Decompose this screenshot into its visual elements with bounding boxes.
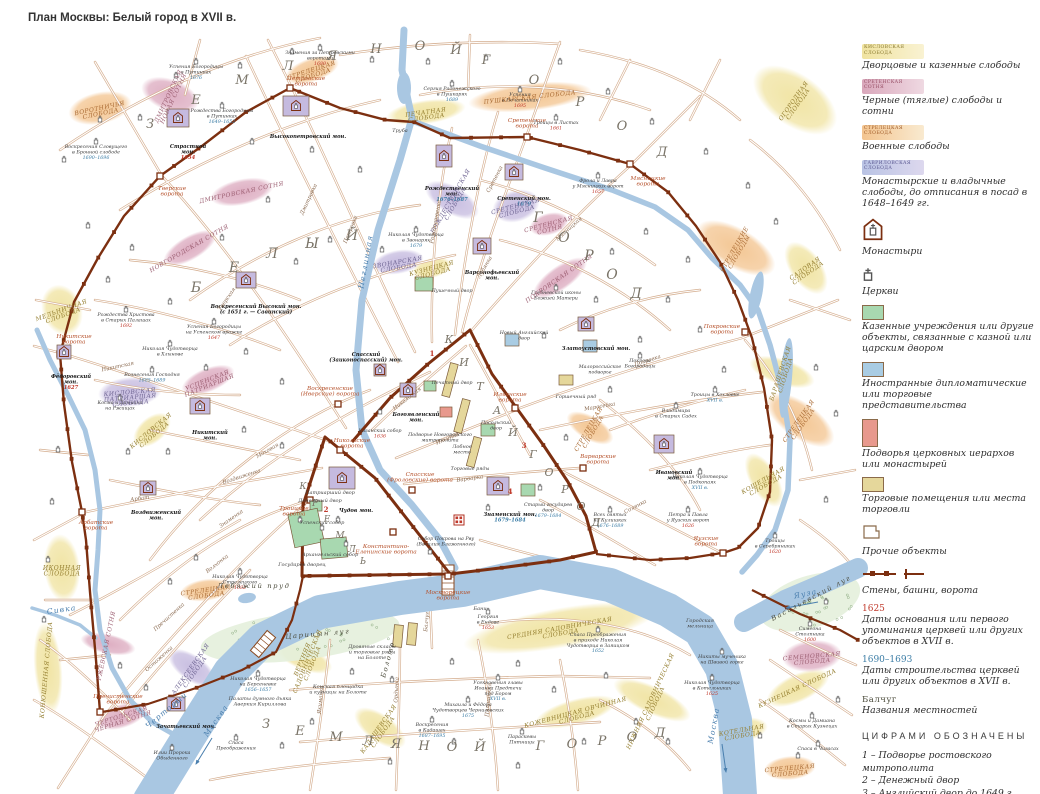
church-icon — [862, 265, 1034, 285]
legend-item: БалчугНазвания местностей — [862, 695, 1034, 717]
district-letter: Й — [449, 40, 462, 58]
church-body — [168, 342, 172, 346]
church-icon — [168, 340, 172, 346]
church-icon — [428, 548, 432, 554]
church-icon — [814, 364, 818, 370]
church-icon-svg — [862, 265, 874, 281]
wall-tower — [359, 465, 363, 469]
church-body — [234, 736, 238, 740]
church-body — [698, 470, 702, 474]
building-trade — [559, 375, 573, 385]
legend-color-rect — [862, 305, 884, 320]
church-icon — [638, 336, 642, 342]
church-body — [686, 258, 690, 262]
church-icon — [280, 442, 284, 448]
church-icon — [380, 246, 384, 252]
church-body — [582, 740, 586, 744]
street — [210, 758, 390, 780]
legend-swatch: СРЕТЕНСКАЯ СОТНЯ — [862, 79, 924, 94]
church-icon — [280, 378, 284, 384]
church-body — [170, 746, 174, 750]
church-icon — [520, 728, 524, 734]
street-core — [790, 300, 850, 320]
monastery-label: Богоявленскиймон. — [392, 411, 440, 423]
wall-tower — [476, 569, 480, 573]
church-body — [350, 670, 354, 674]
church-icon — [596, 172, 600, 178]
wall-gate — [97, 709, 103, 715]
wall-tower — [85, 546, 89, 550]
district-letter: М — [334, 531, 345, 541]
church-icon — [608, 386, 612, 392]
gate-label: Труба — [392, 127, 407, 134]
legend-item: Подворья церковных иерархов или монастыр… — [862, 419, 1034, 471]
wall-tower — [659, 558, 663, 562]
church-label: Воскресения Словущегов Бронной слободе16… — [64, 144, 128, 161]
church-body — [280, 444, 284, 448]
church-icon — [294, 258, 298, 264]
district-letter: О — [606, 267, 618, 283]
district-letter: Г — [481, 53, 491, 68]
wall-tower — [753, 346, 757, 350]
wall-tower — [666, 190, 670, 194]
wall-tower — [92, 635, 96, 639]
legend-numbered-item: 1 – Подворье ростовского митрополита — [862, 750, 1034, 775]
church-body — [810, 714, 814, 718]
church-body — [596, 174, 600, 178]
church-body — [773, 534, 777, 538]
church-icon — [378, 408, 382, 414]
church-body — [450, 82, 454, 86]
legend-color-rect — [862, 419, 878, 447]
wall-tower — [399, 509, 403, 513]
street-core — [750, 140, 840, 250]
church-body — [358, 168, 362, 172]
church-icon — [42, 616, 46, 622]
district-letter: О — [627, 730, 638, 745]
monastery-church — [147, 487, 150, 490]
wall-gate — [287, 85, 293, 91]
wall-tower — [499, 385, 503, 389]
district-letter: Е — [294, 724, 305, 739]
wall-tower — [440, 132, 444, 136]
church-body — [414, 228, 418, 232]
pond — [237, 592, 256, 605]
church-icon — [94, 138, 98, 144]
legend-numbered-item: 2 – Денежный двор — [862, 775, 1034, 788]
church-label: Николая Чудотворцав ПодкопаяхXVII в. — [671, 474, 728, 491]
district-letter: О — [415, 39, 426, 54]
building-label: Пушечный двор — [431, 288, 473, 294]
church-body — [144, 686, 148, 690]
wall-tower — [469, 136, 473, 140]
legend-item: Казенные учреждения или другие объекты, … — [862, 305, 1034, 355]
church-icon — [836, 696, 840, 702]
church-body — [430, 718, 434, 722]
church-body — [50, 500, 54, 504]
pokrova-dome — [460, 517, 463, 520]
wall-gate — [157, 173, 163, 179]
legend-place-sample: Балчуг — [862, 695, 1034, 705]
wall-tower — [743, 318, 747, 322]
district-letter: О — [617, 119, 628, 134]
pokrova-dome — [456, 521, 459, 524]
street — [190, 205, 420, 300]
wall-tower — [270, 96, 274, 100]
legend-item: 1690–1693Даты строительства церквей или … — [862, 655, 1034, 688]
church-icon — [824, 496, 828, 502]
church-body — [814, 366, 818, 370]
wall-tower — [732, 290, 736, 294]
district-letter: Л — [362, 734, 375, 749]
street-label: Волхонка — [204, 554, 230, 576]
wall-tower — [354, 110, 358, 114]
district-letter: О — [567, 737, 578, 752]
church-body — [94, 140, 98, 144]
church-icon — [220, 102, 224, 108]
wall-tower — [765, 405, 769, 409]
district-letter: К — [299, 482, 308, 492]
gate-label: Спасские(Фроловские) ворота — [387, 472, 453, 483]
river — [150, 572, 740, 794]
church-label: Петра и Павлау Яузских ворот1626 — [666, 512, 710, 529]
church-body — [686, 508, 690, 512]
church-icon — [834, 410, 838, 416]
church-body — [204, 366, 208, 370]
church-body — [390, 678, 394, 682]
wall-gate — [409, 487, 415, 493]
district-letter: Д — [629, 286, 642, 302]
wall-tower — [594, 550, 598, 554]
monastery-church — [481, 245, 484, 248]
monastery-church — [443, 155, 446, 158]
district-letter: О — [447, 740, 458, 755]
church-body — [138, 116, 142, 120]
street-label: Сретенка — [486, 165, 505, 193]
church-icon — [450, 80, 454, 86]
church-body — [558, 60, 562, 64]
church-label: Илии ПророкаОбыденного — [153, 750, 191, 761]
misc-label: Городскаямельница — [685, 618, 714, 629]
church-icon — [564, 434, 568, 440]
wall-tower — [769, 465, 773, 469]
church-icon — [704, 148, 708, 154]
wall-tower — [308, 574, 312, 578]
wall-gate — [390, 529, 396, 535]
church-label: Владимирав Старых Садех — [655, 408, 697, 419]
misc-label: Лобноеместо — [451, 443, 472, 455]
misc-label: Палаты думного дьякаАверкия Кириллова — [228, 696, 292, 707]
district-letter: Р — [560, 483, 569, 496]
church-body — [238, 64, 242, 68]
district-letter: Й — [507, 425, 518, 439]
district-letter: Е — [190, 93, 201, 108]
church-body — [774, 220, 778, 224]
church-body — [824, 600, 828, 604]
wall-tower — [112, 230, 116, 234]
street-core — [34, 468, 322, 540]
church-icon — [168, 298, 172, 304]
district-letter: Е — [228, 260, 239, 276]
garden-tree — [836, 618, 838, 620]
garden-tree — [387, 638, 389, 640]
wall-tower — [444, 348, 448, 352]
church-icon — [194, 58, 198, 64]
church-icon — [496, 674, 500, 680]
church-icon — [516, 762, 520, 768]
church-body — [698, 328, 702, 332]
wall-tower — [407, 379, 411, 383]
church-icon — [310, 146, 314, 152]
wall-tower — [555, 463, 559, 467]
church-body — [378, 410, 382, 414]
numeral-marker: 4 — [508, 487, 513, 496]
church-icon — [126, 448, 130, 454]
church-icon — [698, 326, 702, 332]
church-body — [836, 698, 840, 702]
building-trade — [442, 363, 459, 398]
church-icon — [56, 446, 60, 452]
church-icon — [46, 556, 50, 562]
pokrova-dome — [456, 517, 459, 520]
district-letter: М — [234, 73, 249, 88]
wall-tower — [172, 164, 176, 168]
kremlin-label: Патриарший двор — [304, 490, 356, 496]
monastery-label: Чудов мон. — [339, 508, 373, 514]
monastery-church — [63, 351, 66, 354]
district-letter: Т — [476, 380, 485, 393]
legend-item-description: Казенные учреждения или другие объекты, … — [862, 322, 1034, 355]
legend-item-description: Прочие объекты — [862, 547, 1034, 558]
church-label: Никиты мученикана Швивой горке — [697, 654, 746, 665]
pond — [397, 72, 411, 104]
wall-tower — [383, 118, 387, 122]
district-letter: Д — [654, 726, 666, 741]
wall-tower — [685, 556, 689, 560]
wall-tower — [348, 573, 352, 577]
district-letter: О — [544, 466, 553, 479]
monastery-church — [199, 405, 202, 408]
church-icon — [596, 626, 600, 632]
district-letter: Д — [591, 516, 602, 529]
church-body — [98, 118, 102, 122]
street-label: Варварка — [455, 474, 483, 484]
church-body — [256, 672, 260, 676]
district-letter: Г — [535, 739, 545, 754]
monastery-church — [407, 389, 410, 392]
wall-tower — [770, 435, 774, 439]
church-icon — [350, 668, 354, 674]
district-letter: З — [262, 717, 270, 732]
church-body — [720, 650, 724, 654]
church-icon — [486, 608, 490, 614]
district-letter: Й — [345, 225, 359, 244]
wall-tower — [59, 368, 63, 372]
wall-tower — [587, 151, 591, 155]
church-body — [552, 688, 556, 692]
church-icon — [328, 236, 332, 242]
church-body — [250, 140, 254, 144]
church-icon — [686, 256, 690, 262]
church-icon — [773, 532, 777, 538]
district-letter: Я — [390, 737, 402, 752]
church-icon — [638, 352, 642, 358]
church-body — [638, 338, 642, 342]
district-letter: З — [146, 117, 154, 132]
wall-tower — [150, 184, 154, 188]
misc-label: Денежный двор — [297, 498, 342, 504]
gate-label: Никитскиеворота — [55, 334, 92, 345]
church-body — [808, 622, 812, 626]
wall-tower — [62, 398, 66, 402]
wall-gate — [335, 401, 341, 407]
church-body — [310, 148, 314, 152]
church-icon — [310, 718, 314, 724]
wall-tower — [75, 486, 79, 490]
church-icon — [194, 554, 198, 560]
church-body — [212, 320, 216, 324]
church-body — [520, 730, 524, 734]
church-icon — [486, 504, 490, 510]
church-body — [486, 506, 490, 510]
church-body — [746, 184, 750, 188]
wall-tower — [703, 238, 707, 242]
building-gov — [521, 484, 535, 496]
legend-color-rect — [862, 362, 884, 377]
church-icon — [666, 738, 670, 744]
church-body — [704, 150, 708, 154]
street-core — [690, 60, 720, 120]
church-icon — [388, 758, 392, 764]
wall-tower — [294, 602, 298, 606]
church-body — [86, 224, 90, 228]
church-icon — [594, 296, 598, 302]
wall-tower — [374, 413, 378, 417]
legend-item: КИСЛОВСКАЯ СЛОБОДАДворцовые и казенные с… — [862, 44, 1034, 72]
district-letter: Ь — [359, 557, 366, 567]
church-icon — [710, 674, 714, 680]
garden-tree — [841, 616, 843, 618]
wall-tower — [760, 375, 764, 379]
legend-swatch: ГАВРИЛОВСКАЯ СЛОБОДА — [862, 160, 924, 175]
wall-icon-svg — [862, 568, 926, 580]
gate-label: Константино-Еленинские ворота — [354, 544, 417, 555]
map-legend: КИСЛОВСКАЯ СЛОБОДАДворцовые и казенные с… — [862, 44, 1034, 794]
monastery-church — [663, 443, 666, 446]
church-icon — [810, 712, 814, 718]
wall-tower — [685, 214, 689, 218]
special-label: Собор Покрова на Рву(Василия Блаженного) — [417, 535, 476, 547]
church-body — [674, 404, 678, 408]
church-label: Воскресенияв Кадашах1687–1695 — [415, 722, 449, 739]
church-body — [42, 618, 46, 622]
legend-item: Монастыри — [862, 217, 1034, 258]
legend-item-description: Подворья церковных иерархов или монастыр… — [862, 449, 1034, 471]
church-body — [722, 368, 726, 372]
church-icon — [650, 118, 654, 124]
kremlin-label: Успенский собор — [300, 519, 346, 526]
street-core — [600, 60, 630, 120]
church-icon — [238, 568, 242, 574]
church-icon — [796, 752, 800, 758]
monastery-label: Страстноймон.1654 — [170, 143, 206, 161]
district-letter: Б — [190, 280, 201, 296]
wall-gate — [445, 573, 451, 579]
wall-tower — [541, 443, 545, 447]
church-body — [538, 486, 542, 490]
church-body — [650, 120, 654, 124]
church-body — [608, 508, 612, 512]
church-body — [824, 498, 828, 502]
church-icon — [124, 306, 128, 312]
wall-tower — [767, 494, 771, 498]
church-icon — [238, 62, 242, 68]
gate-label: Покровскиеворота — [703, 324, 741, 335]
church-icon — [604, 672, 608, 678]
wall-tower — [70, 457, 74, 461]
church-label: ПараскевыПятницы — [507, 734, 536, 745]
wall-tower — [436, 557, 440, 561]
wall-tower — [452, 572, 456, 576]
church-icon — [168, 578, 172, 584]
church-icon — [582, 738, 586, 744]
district-letter: Л — [282, 59, 295, 74]
church-body — [554, 116, 558, 120]
church-body — [644, 230, 648, 234]
legend-swatch-tag: СТРЕЛЕЦКАЯ СЛОБОДА — [864, 126, 903, 137]
church-body — [608, 388, 612, 392]
church-body — [610, 250, 614, 254]
legend-item-description: Даты основания или первого упоминания це… — [862, 615, 1034, 648]
church-icon — [212, 318, 216, 324]
church-icon — [318, 44, 322, 50]
district-letter: М — [328, 730, 343, 745]
other-object-icon-svg — [862, 523, 882, 541]
church-icon — [552, 686, 556, 692]
church-icon — [358, 166, 362, 172]
wall-tower — [388, 573, 392, 577]
street-core — [800, 470, 855, 480]
church-icon — [644, 228, 648, 234]
wall-gate — [580, 465, 586, 471]
monastery-label: Спасский(Заиконоспасский) мон. — [329, 351, 403, 363]
church-icon — [666, 296, 670, 302]
monastery-label: Знаменский мон.1679–1684 — [484, 511, 537, 523]
monastery-church — [379, 369, 382, 372]
district-letter: Р — [583, 248, 594, 264]
church-icon — [450, 658, 454, 664]
monastery-label: Златоустовский мон. — [562, 345, 631, 352]
church-body — [834, 412, 838, 416]
church-body — [666, 298, 670, 302]
church-icon — [256, 670, 260, 676]
street-core — [40, 450, 88, 455]
numeral-marker: 3 — [522, 441, 527, 450]
wall-tower — [375, 478, 379, 482]
wall-tower — [82, 282, 86, 286]
church-icon — [50, 498, 54, 504]
church-icon — [606, 88, 610, 94]
gate-label: Ильинскиеворота — [492, 392, 527, 403]
legend-item-description: Монастыри — [862, 247, 1034, 258]
church-body — [816, 742, 820, 746]
church-icon — [106, 276, 110, 282]
legend-item: СТРЕЛЕЦКАЯ СЛОБОДАВоенные слободы — [862, 125, 1034, 153]
wall-tower — [524, 563, 528, 567]
district-letter: К — [444, 333, 454, 346]
church-body — [194, 60, 198, 64]
district-letter: И — [458, 356, 469, 369]
